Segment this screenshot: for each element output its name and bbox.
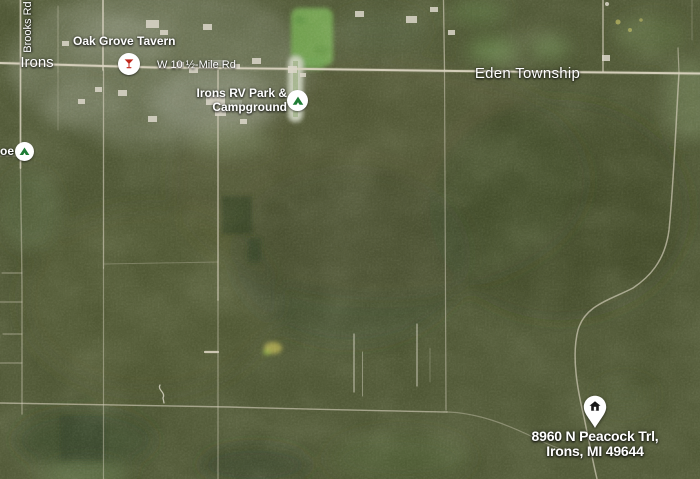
- address-line1: 8960 N Peacock Trl,: [513, 429, 677, 444]
- martini-glass-icon: [122, 57, 136, 71]
- poi-label-line1: Irons RV Park &: [165, 86, 287, 100]
- address-line2: Irons, MI 49644: [513, 444, 677, 459]
- campground-tent-icon: [291, 94, 305, 108]
- home-pin-icon: [583, 395, 607, 428]
- road-label-mile-road: W 10 ½-Mile Rd: [157, 59, 236, 71]
- poi-marker-oak-grove-tavern[interactable]: [118, 53, 140, 75]
- destination-pin[interactable]: [583, 395, 607, 428]
- road-label-brooks-rd: Brooks Rd: [22, 0, 34, 57]
- campground-tent-icon: [18, 145, 31, 158]
- township-label-eden: Eden Township: [455, 65, 600, 82]
- poi-label-line2: Campground: [165, 100, 287, 114]
- satellite-map[interactable]: Brooks Rd Irons Oak Grove Tavern W 10 ½-…: [0, 0, 700, 479]
- destination-address: 8960 N Peacock Trl, Irons, MI 49644: [513, 429, 677, 459]
- poi-label-irons-rv-park[interactable]: Irons RV Park & Campground: [165, 86, 287, 114]
- poi-label-edge-partial[interactable]: oe: [0, 144, 14, 158]
- poi-marker-edge-campground[interactable]: [15, 142, 34, 161]
- poi-label-oak-grove-tavern[interactable]: Oak Grove Tavern: [73, 34, 173, 48]
- town-label-irons: Irons: [20, 54, 54, 71]
- poi-marker-irons-rv-park[interactable]: [287, 90, 308, 111]
